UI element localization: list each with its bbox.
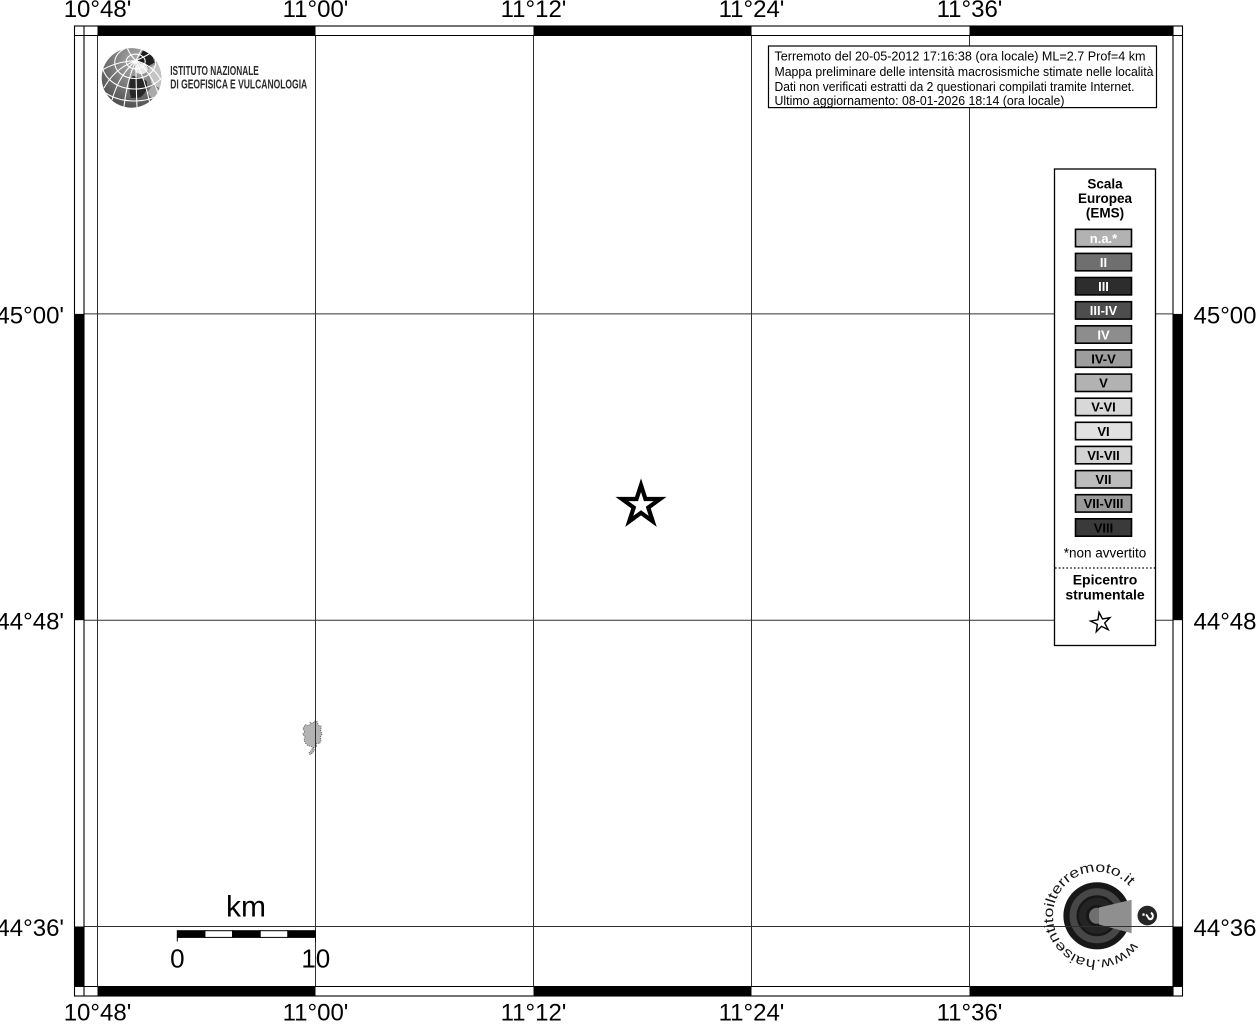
svg-text:VI: VI bbox=[1097, 424, 1109, 439]
svg-text:III-IV: III-IV bbox=[1090, 303, 1118, 318]
svg-text:45°00': 45°00' bbox=[1194, 302, 1256, 329]
svg-text:IV-V: IV-V bbox=[1091, 351, 1116, 366]
svg-text:IV: IV bbox=[1097, 327, 1110, 342]
svg-text:45°00': 45°00' bbox=[0, 302, 64, 329]
svg-text:Ultimo aggiornamento: 08-01-20: Ultimo aggiornamento: 08-01-2026 18:14 (… bbox=[775, 93, 1065, 108]
svg-text:VI-VII: VI-VII bbox=[1087, 448, 1120, 463]
svg-text:VIII: VIII bbox=[1094, 520, 1114, 535]
svg-text:Europea: Europea bbox=[1078, 191, 1133, 206]
svg-text:11°24': 11°24' bbox=[719, 0, 785, 23]
svg-text:strumentale: strumentale bbox=[1065, 587, 1145, 603]
svg-text:44°48': 44°48' bbox=[0, 609, 64, 636]
svg-text:44°48': 44°48' bbox=[1194, 609, 1256, 636]
svg-text:11°00': 11°00' bbox=[283, 0, 349, 23]
svg-text:0: 0 bbox=[170, 943, 184, 973]
svg-text:11°12': 11°12' bbox=[501, 1000, 567, 1024]
svg-text:VII: VII bbox=[1096, 472, 1112, 487]
svg-text:10°48': 10°48' bbox=[64, 0, 132, 23]
svg-text:Terremoto del 20-05-2012 17:16: Terremoto del 20-05-2012 17:16:38 (ora l… bbox=[775, 49, 1146, 64]
svg-text:44°36': 44°36' bbox=[1194, 915, 1256, 942]
svg-text:11°24': 11°24' bbox=[719, 1000, 785, 1024]
svg-text:11°00': 11°00' bbox=[283, 1000, 349, 1024]
svg-text:Scala: Scala bbox=[1087, 177, 1123, 192]
svg-text:11°36': 11°36' bbox=[937, 1000, 1003, 1024]
svg-text:10°48': 10°48' bbox=[64, 1000, 132, 1024]
svg-text:V-VI: V-VI bbox=[1091, 400, 1116, 415]
svg-text:II: II bbox=[1100, 255, 1107, 270]
svg-text:Epicentro: Epicentro bbox=[1073, 572, 1138, 588]
svg-text:n.a.*: n.a.* bbox=[1090, 231, 1118, 246]
svg-text:Dati non verificati estratti d: Dati non verificati estratti da 2 questi… bbox=[775, 79, 1135, 94]
svg-text:*non avvertito: *non avvertito bbox=[1064, 546, 1147, 561]
svg-text:ISTITUTO NAZIONALE: ISTITUTO NAZIONALE bbox=[170, 64, 259, 78]
svg-text:(EMS): (EMS) bbox=[1086, 206, 1124, 221]
svg-text:V: V bbox=[1099, 376, 1108, 391]
svg-text:DI GEOFISICA E VULCANOLOGIA: DI GEOFISICA E VULCANOLOGIA bbox=[170, 78, 307, 92]
svg-text:VII-VIII: VII-VIII bbox=[1084, 496, 1124, 511]
svg-text:III: III bbox=[1098, 279, 1109, 294]
svg-text:11°36': 11°36' bbox=[937, 0, 1003, 23]
svg-text:11°12': 11°12' bbox=[501, 0, 567, 23]
svg-text:10: 10 bbox=[301, 943, 330, 973]
svg-text:44°36': 44°36' bbox=[0, 915, 64, 942]
svg-text:km: km bbox=[226, 891, 266, 924]
svg-text:Mappa preliminare delle intens: Mappa preliminare delle intensità macros… bbox=[775, 64, 1155, 79]
